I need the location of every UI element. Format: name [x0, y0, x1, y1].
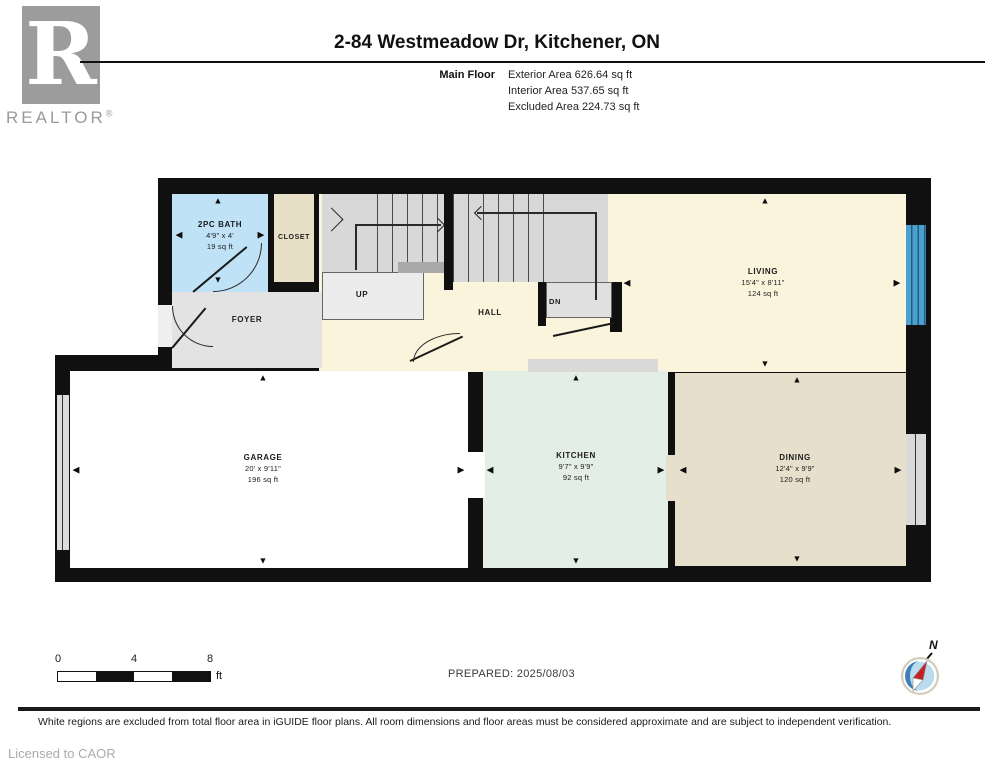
- dim-arrow-up-icon: ▲: [572, 374, 581, 383]
- dim-arrow-left-icon: ◀: [176, 231, 183, 240]
- up-label: UP: [356, 290, 368, 301]
- dim-arrow-down-icon: ▼: [572, 557, 581, 566]
- kitchen-counter: [528, 359, 658, 372]
- interior-area: Interior Area 537.65 sq ft: [508, 85, 628, 97]
- scale-unit: ft: [216, 670, 222, 682]
- stairs-down-treads: [453, 194, 548, 282]
- foyer-label: FOYER: [232, 315, 263, 326]
- stairs-up-landing: [322, 272, 424, 320]
- dim-arrow-right-icon: ▶: [258, 231, 265, 240]
- dining-label: DINING 12'4" x 9'9" 120 sq ft: [775, 453, 814, 485]
- hall-label: HALL: [478, 308, 502, 319]
- floor-plan: 2PC BATH 4'9" x 4' 19 sq ft CLOSET FOYER…: [55, 175, 935, 585]
- up-arrow-line: [355, 224, 441, 226]
- dim-arrow-down-icon: ▼: [761, 360, 770, 369]
- kitchen-dining-opening: [666, 455, 677, 501]
- dim-arrow-down-icon: ▼: [793, 555, 802, 564]
- north-label: N: [929, 638, 938, 652]
- dn-arrow-tail: [595, 212, 597, 300]
- scale-bar: [57, 671, 211, 682]
- sliding-door: [906, 432, 926, 527]
- garage-kitchen-opening: [466, 452, 485, 498]
- stairs-up-treads: [377, 194, 444, 272]
- scale-tick-4: 4: [131, 653, 137, 665]
- garage-label: GARAGE 20' x 9'11" 196 sq ft: [244, 453, 283, 485]
- excluded-area: Excluded Area 224.73 sq ft: [508, 101, 639, 113]
- dim-arrow-up-icon: ▲: [761, 197, 770, 206]
- page-title: 2-84 Westmeadow Dr, Kitchener, ON: [0, 32, 994, 54]
- scale-tick-0: 0: [55, 653, 61, 665]
- dim-arrow-left-icon: ◀: [680, 466, 687, 475]
- compass-rose-icon: [894, 640, 954, 700]
- footer-divider: [18, 707, 980, 711]
- floor-label: Main Floor: [343, 69, 495, 81]
- dim-arrow-down-icon: ▼: [214, 276, 223, 285]
- dn-arrow-line: [477, 212, 595, 214]
- dim-arrow-right-icon: ▶: [658, 466, 665, 475]
- dn-label: DN: [549, 297, 561, 307]
- up-arrow-tail: [355, 224, 357, 270]
- dim-arrow-right-icon: ▶: [894, 279, 901, 288]
- stair-step: [398, 262, 444, 273]
- dim-arrow-left-icon: ◀: [73, 466, 80, 475]
- front-door-gap: [158, 305, 172, 347]
- realtor-logo-r: R: [25, 12, 96, 98]
- dim-arrow-right-icon: ▶: [458, 466, 465, 475]
- stair-divider-wall: [444, 194, 453, 290]
- dim-arrow-right-icon: ▶: [895, 466, 902, 475]
- realtor-logo: R: [22, 6, 100, 104]
- exterior-area: Exterior Area 626.64 sq ft: [508, 69, 632, 81]
- living-window: [906, 223, 926, 327]
- dim-arrow-up-icon: ▲: [214, 197, 223, 206]
- closet-label: CLOSET: [278, 233, 310, 242]
- garage-door: [57, 393, 69, 552]
- dim-arrow-up-icon: ▲: [793, 376, 802, 385]
- disclaimer-text: White regions are excluded from total fl…: [38, 716, 968, 728]
- dn-wall-left: [538, 282, 546, 326]
- prepared-date: PREPARED: 2025/08/03: [448, 668, 575, 680]
- living-label: LIVING 15'4" x 8'11" 124 sq ft: [741, 267, 784, 299]
- license-text: Licensed to CAOR: [8, 746, 116, 761]
- scale-tick-8: 8: [207, 653, 213, 665]
- bath-label: 2PC BATH 4'9" x 4' 19 sq ft: [198, 220, 242, 252]
- title-divider: [80, 61, 985, 63]
- realtor-logo-word: REALTOR®: [6, 108, 115, 128]
- dim-arrow-up-icon: ▲: [259, 374, 268, 383]
- kitchen-label: KITCHEN 9'7" x 9'9" 92 sq ft: [556, 451, 596, 483]
- dim-arrow-left-icon: ◀: [624, 279, 631, 288]
- dim-arrow-down-icon: ▼: [259, 557, 268, 566]
- dim-arrow-left-icon: ◀: [487, 466, 494, 475]
